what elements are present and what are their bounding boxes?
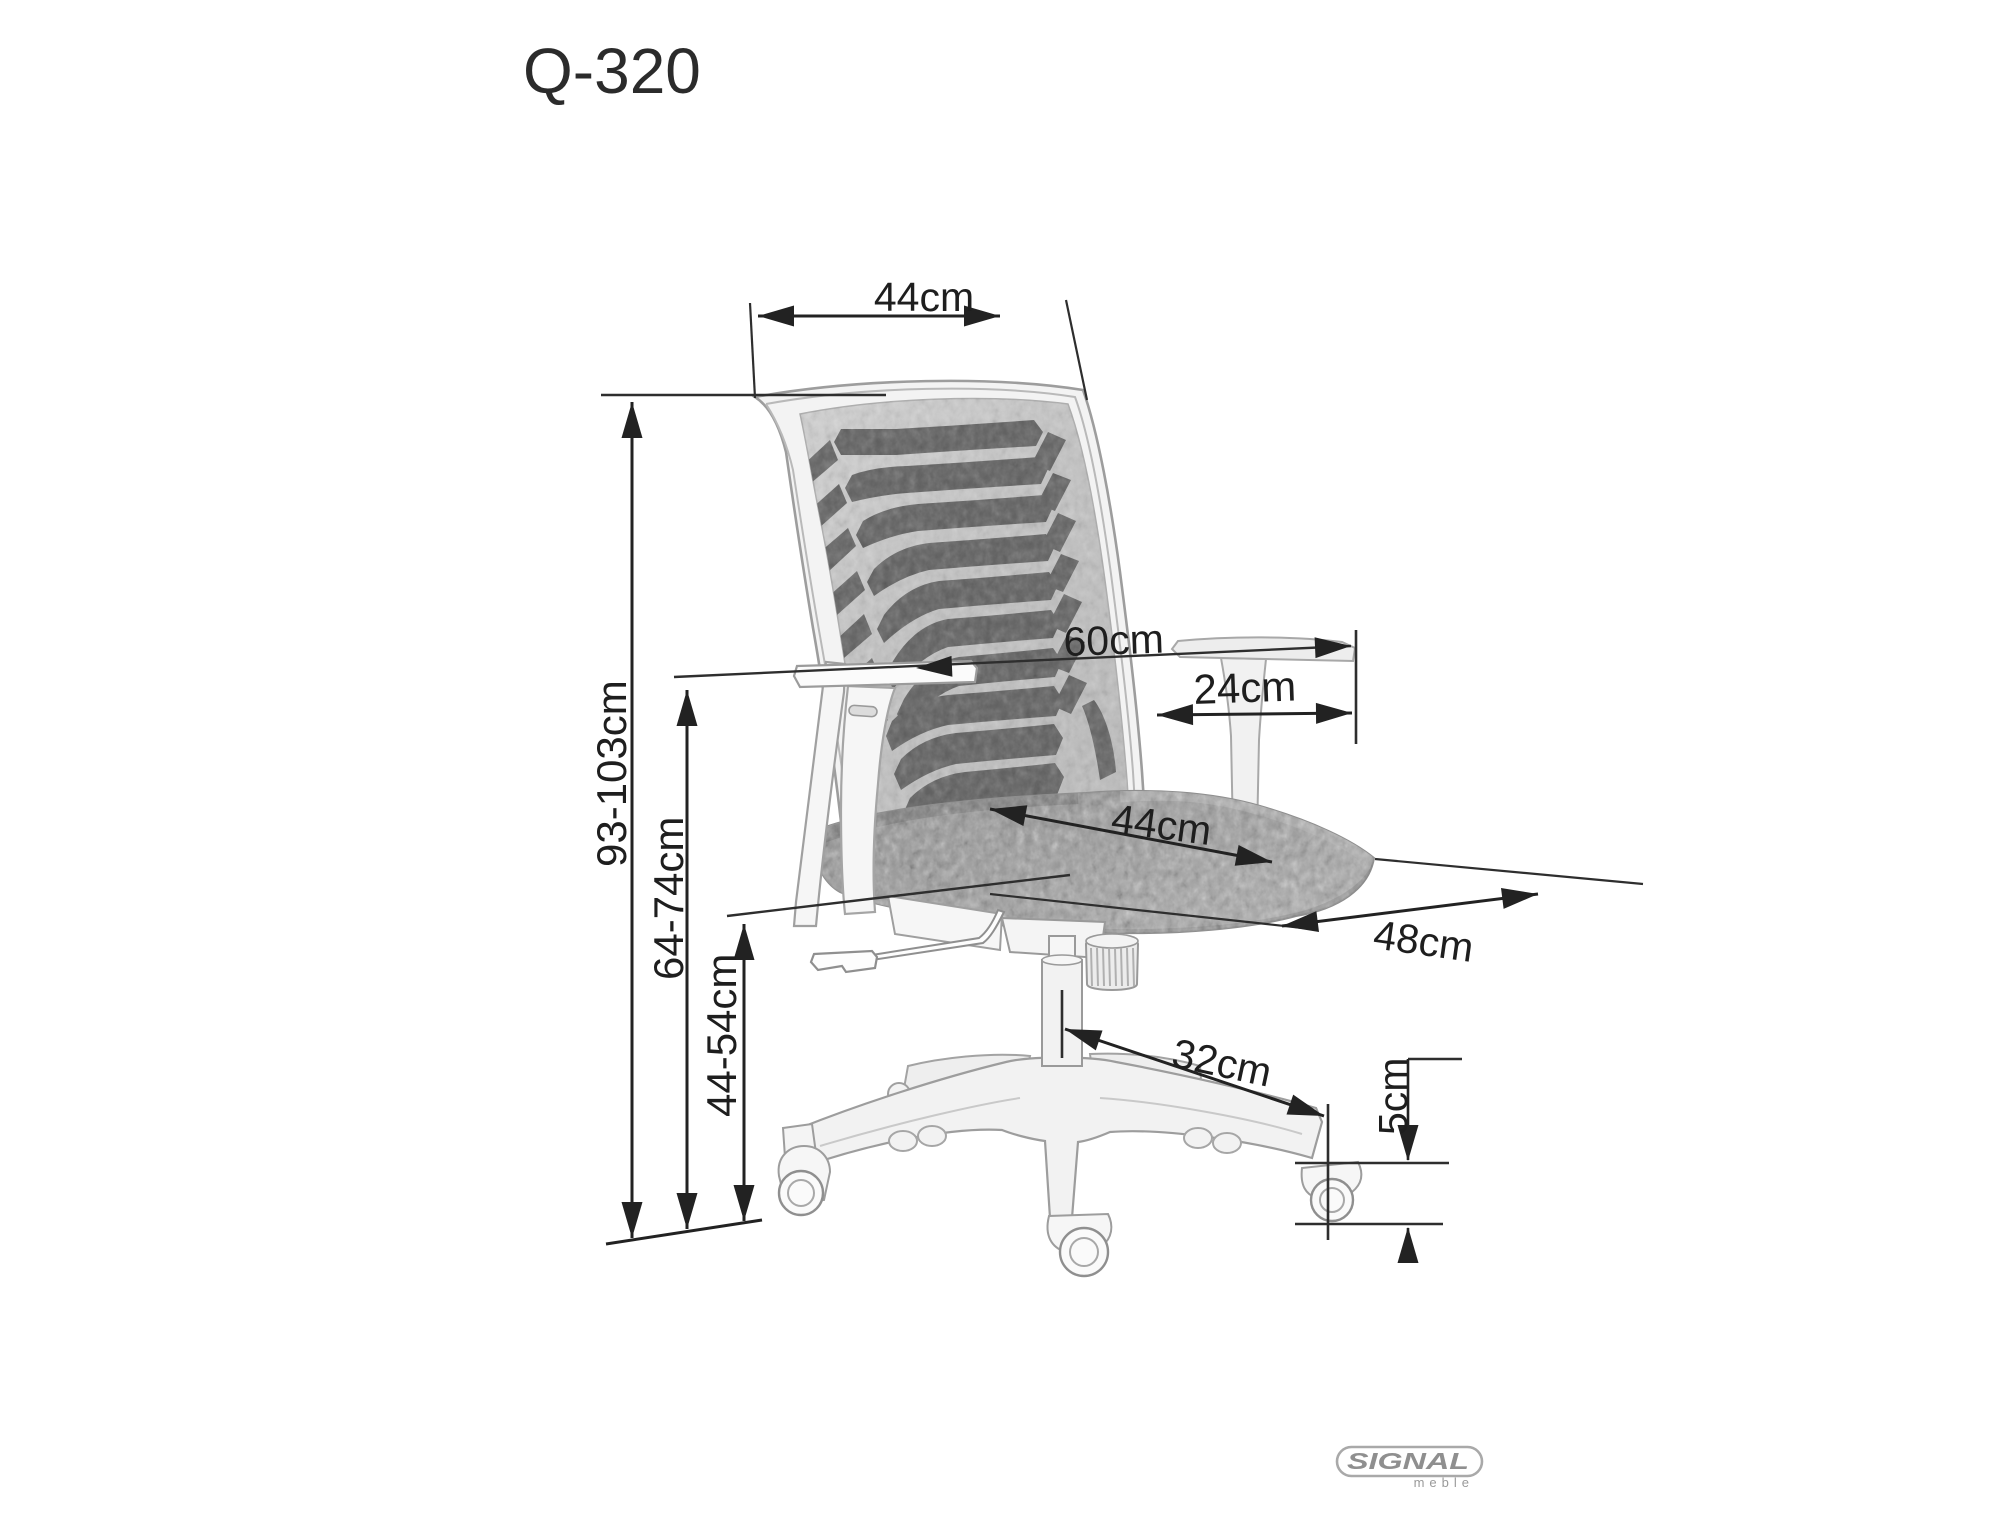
svg-text:meble: meble — [1414, 1475, 1474, 1490]
svg-text:93-103cm: 93-103cm — [588, 680, 635, 867]
svg-text:60cm: 60cm — [1063, 616, 1165, 665]
svg-text:SIGNAL: SIGNAL — [1347, 1448, 1469, 1474]
svg-text:5cm: 5cm — [1370, 1058, 1416, 1135]
svg-text:24cm: 24cm — [1193, 662, 1297, 713]
svg-text:64-74cm: 64-74cm — [645, 817, 692, 980]
svg-text:44cm: 44cm — [874, 274, 974, 320]
svg-text:Q-320: Q-320 — [523, 35, 701, 107]
svg-text:44-54cm: 44-54cm — [698, 954, 745, 1117]
